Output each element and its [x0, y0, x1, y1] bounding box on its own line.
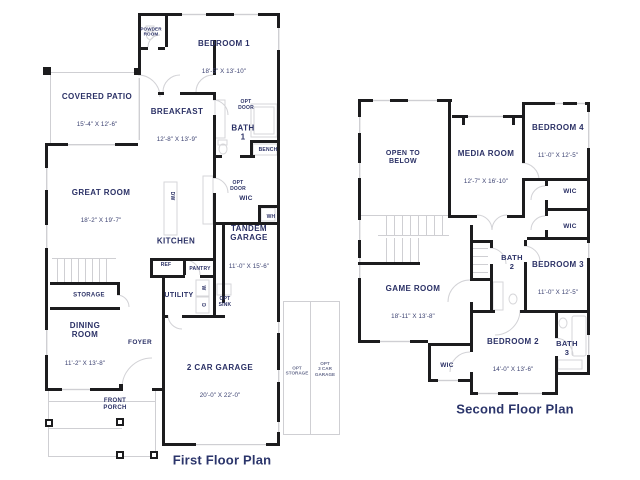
room-label-kitchen: KITCHEN [157, 236, 195, 245]
room-label-tandem-garage: TANDEM GARAGE 11'-0" X 15'-6" [229, 205, 269, 289]
room-name: BEDROOM 2 [487, 337, 539, 346]
label-opt-sink: OPT SINK [219, 297, 232, 309]
room-label-wic-ff: WIC [239, 195, 253, 203]
label-opt-door-wic: OPT DOOR [230, 181, 246, 193]
porch-post-centers [47, 420, 156, 457]
room-label-great-room: GREAT ROOM 18'-2" X 19'-7" [72, 169, 131, 243]
room-label-wic-bed4-b: WIC [563, 223, 577, 231]
room-label-storage: STORAGE [73, 292, 105, 299]
room-name: BEDROOM 3 [532, 260, 584, 269]
room-dims: 18'-11" X 13'-8" [386, 313, 441, 320]
room-name: 2 CAR GARAGE [187, 363, 253, 372]
room-dims: 11'-0" X 15'-6" [229, 263, 269, 270]
room-label-bath-1: BATH 1 [231, 124, 254, 143]
room-label-front-porch: FRONT PORCH [103, 398, 126, 412]
label-refrigerator: REF [161, 263, 172, 269]
room-name: GREAT ROOM [72, 188, 131, 197]
label-powder-room: POWDER ROOM [140, 27, 161, 38]
room-dims: 14'-0" X 13'-6" [487, 366, 539, 373]
room-dims: 12'-7" X 16'-10" [458, 178, 515, 185]
room-dims: 18'-2" X 19'-7" [72, 217, 131, 224]
room-label-2-car-garage: 2 CAR GARAGE 20'-0" X 22'-0" [187, 344, 253, 418]
room-label-open-to-below: OPEN TO BELOW [386, 150, 420, 167]
label-pantry: PANTRY [189, 267, 210, 273]
room-label-foyer: FOYER [128, 339, 152, 347]
room-label-bath-2: BATH 2 [501, 254, 523, 272]
room-name: TANDEM GARAGE [229, 224, 269, 243]
room-name: BREAKFAST [151, 107, 204, 116]
room-dims: 11'-2" X 13'-8" [65, 360, 105, 367]
room-name: GAME ROOM [386, 284, 441, 293]
room-name: COVERED PATIO [62, 92, 132, 101]
room-name: MEDIA ROOM [458, 149, 515, 158]
second-floor-plan-title: Second Floor Plan [456, 401, 574, 416]
room-label-bedroom-4: BEDROOM 4 11'-0" X 12'-5" [532, 104, 584, 178]
room-label-media-room: MEDIA ROOM 12'-7" X 16'-10" [458, 130, 515, 204]
label-washer: W [199, 286, 205, 291]
label-opt-3-car-garage: OPT 3 CAR GARAGE [315, 361, 335, 377]
room-label-game-room: GAME ROOM 18'-11" X 13'-8" [386, 265, 441, 339]
room-label-utility: UTILITY [164, 292, 193, 300]
room-dims: 18'-5" X 13'-10" [198, 68, 250, 75]
room-label-covered-patio: COVERED PATIO 15'-4" X 12'-6" [62, 73, 132, 147]
floor-plan-page: POWDER ROOM BEDROOM 1 18'-5" X 13'-10" C… [0, 0, 640, 480]
room-name: DINING ROOM [65, 321, 105, 340]
room-dims: 20'-0" X 22'-0" [187, 392, 253, 399]
room-name: BEDROOM 4 [532, 123, 584, 132]
room-label-breakfast: BREAKFAST 12'-8" X 13'-9" [151, 88, 204, 162]
room-label-dining-room: DINING ROOM 11'-2" X 13'-8" [65, 302, 105, 386]
room-label-bedroom-2: BEDROOM 2 14'-0" X 13'-6" [487, 318, 539, 392]
room-dims: 12'-8" X 13'-9" [151, 136, 204, 143]
room-label-wic-bed4-a: WIC [563, 188, 577, 196]
label-dishwasher: DW [168, 192, 174, 201]
room-name: BEDROOM 1 [198, 39, 250, 48]
room-label-wic-bed2: WIC [440, 362, 454, 370]
room-label-bedroom-1: BEDROOM 1 18'-5" X 13'-10" [198, 20, 250, 94]
room-label-bath-3: BATH 3 [556, 340, 578, 358]
label-opt-door-bath1: OPT DOOR [238, 100, 254, 112]
room-dims: 11'-0" X 12'-5" [532, 289, 584, 296]
label-opt-storage: OPT STORAGE [286, 366, 309, 377]
label-dryer: D [199, 303, 205, 307]
room-dims: 11'-0" X 12'-5" [532, 152, 584, 159]
room-label-bedroom-3: BEDROOM 3 11'-0" X 12'-5" [532, 241, 584, 315]
room-dims: 15'-4" X 12'-6" [62, 121, 132, 128]
first-floor-plan-title: First Floor Plan [173, 452, 272, 467]
label-bench: BENCH [259, 148, 278, 154]
